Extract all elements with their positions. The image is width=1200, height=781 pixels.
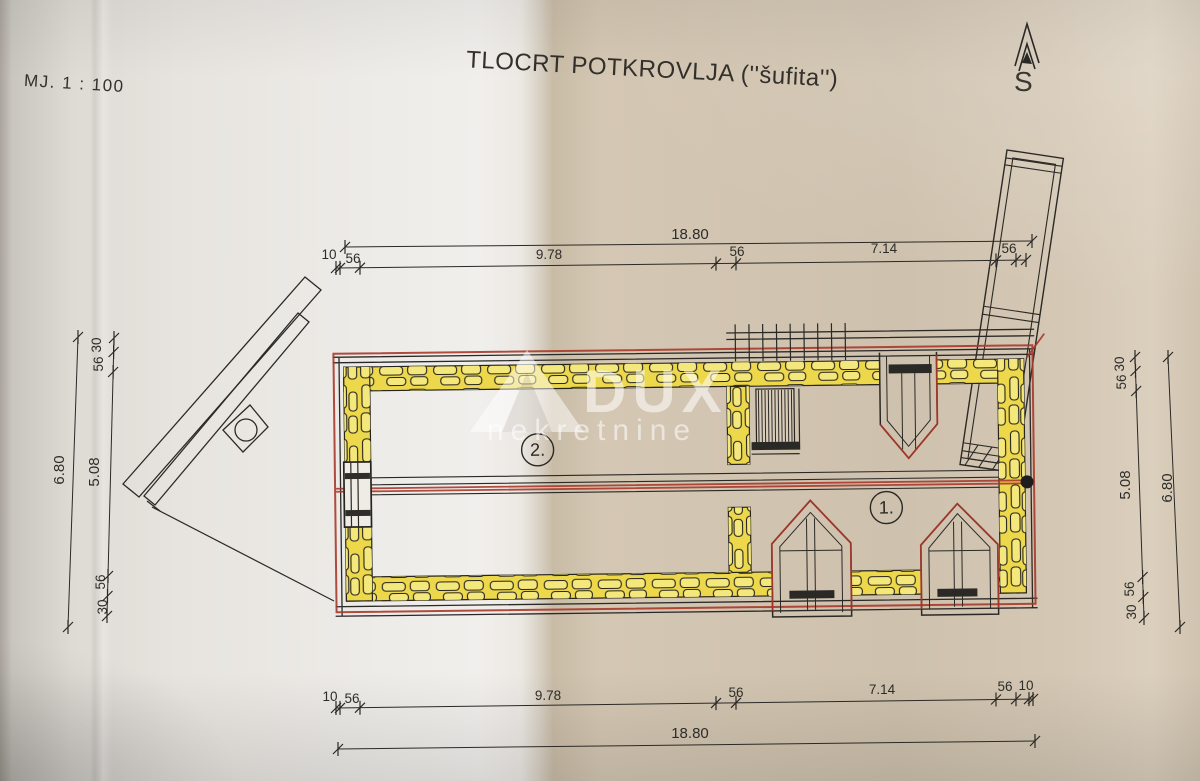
- dim-right-seg: 56: [1114, 374, 1129, 389]
- annex-post-circle: [235, 419, 257, 441]
- left-annex-structure: [123, 277, 334, 601]
- dim-top-seg: 10: [321, 247, 336, 262]
- stairs-hatch: [751, 389, 800, 455]
- dim-right-seg: 30: [1124, 604, 1139, 619]
- stair-treads: [735, 323, 845, 361]
- room-1-badge: 1.: [870, 491, 902, 523]
- dim-bottom-seg: 7.14: [869, 682, 896, 697]
- interior-wall: [727, 386, 751, 572]
- north-label: S: [1014, 66, 1033, 98]
- section-line-red: [336, 480, 1034, 492]
- dim-left-seg: 30: [89, 337, 104, 352]
- dim-bottom-seg: 56: [728, 685, 743, 700]
- dim-top-seg: 56: [1001, 241, 1016, 256]
- dim-left-total: 6.80: [51, 455, 68, 484]
- dim-bottom-seg: 10: [1018, 678, 1033, 693]
- dim-left-seg: 5.08: [86, 457, 103, 486]
- room-1-label: 1.: [879, 497, 894, 517]
- dim-left-seg: 56: [93, 574, 108, 589]
- dormer-top: [879, 352, 937, 459]
- dim-bottom-total: 18.80: [671, 725, 709, 742]
- dim-bottom-seg: 9.78: [535, 688, 561, 703]
- roof-hip-line: [152, 507, 334, 601]
- dim-right-seg: 5.08: [1117, 470, 1134, 499]
- dim-top-seg: 9.78: [536, 247, 562, 262]
- watermark-subtitle: nekretnine: [487, 414, 697, 447]
- dim-top-seg: 56: [729, 244, 744, 259]
- dim-top-total: 18.80: [671, 226, 709, 243]
- window-left: [344, 462, 372, 527]
- annex-post: [223, 405, 268, 452]
- dim-left-seg: 56: [91, 356, 106, 371]
- scanned-floor-plan-page: { "header": { "scale": "MJ. 1 : 100", "t…: [0, 0, 1200, 781]
- dim-left-seg: 30: [95, 599, 110, 614]
- dim-bottom-seg: 56: [344, 691, 359, 706]
- wall-right: [998, 359, 1027, 593]
- dim-bottom-seg: 56: [997, 679, 1012, 694]
- dim-top-seg: 7.14: [871, 241, 898, 256]
- north-arrow-icon: [1015, 24, 1039, 71]
- dim-right-seg: 30: [1112, 356, 1127, 371]
- dim-right-seg: 56: [1122, 581, 1137, 596]
- wall-bottom: [346, 569, 1026, 601]
- blueprint-canvas: 2. 1. 18.80 10 56 9.78 56 7.14 56 10: [0, 0, 1200, 781]
- dim-top-seg: 56: [345, 251, 360, 266]
- dormer-bottom-left: [771, 500, 851, 617]
- dim-bottom-seg: 10: [322, 689, 337, 704]
- dim-right-total: 6.80: [1159, 473, 1176, 502]
